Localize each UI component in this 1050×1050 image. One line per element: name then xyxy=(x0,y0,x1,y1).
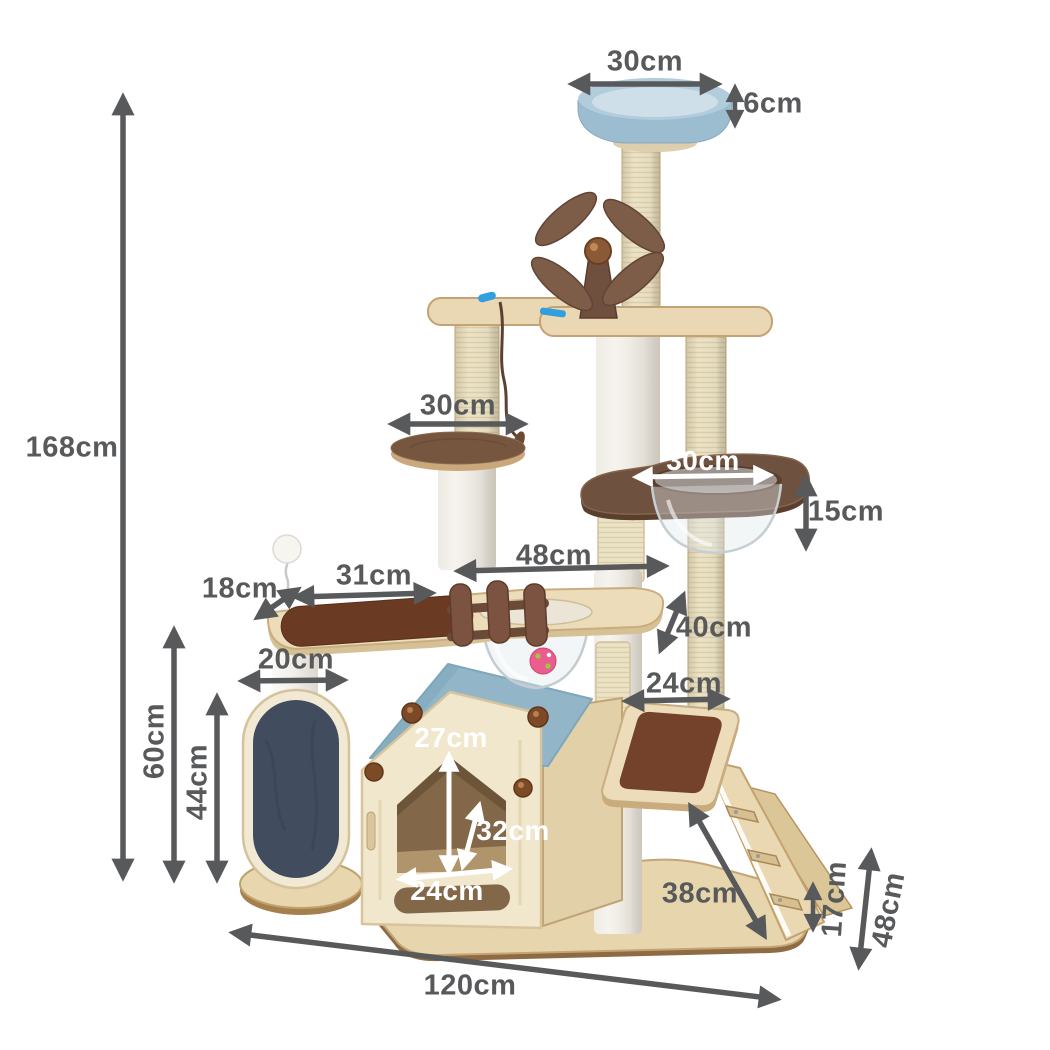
cat-tree-dimension-diagram: 30cm 6cm 168cm 30cm 30cm 15cm 48cm 31cm … xyxy=(0,0,1050,1050)
dim-label-left-perch-depth: 18cm xyxy=(202,575,278,604)
dim-label-ramp-length: 38cm xyxy=(662,880,738,909)
dim-label-upper-platform-width: 48cm xyxy=(516,542,592,571)
dim-arrow-scratcher-width xyxy=(243,680,343,681)
dim-arrow-left-perch-length xyxy=(297,593,431,597)
oval-scratcher xyxy=(240,690,362,915)
top-perch xyxy=(578,78,732,152)
dim-label-round-platform-width: 30cm xyxy=(420,392,496,421)
dim-label-top-perch-width: 30cm xyxy=(607,48,683,77)
fence-toy xyxy=(447,580,549,646)
dim-label-scratcher-height: 60cm xyxy=(141,703,170,779)
dim-label-scratcher-width: 20cm xyxy=(258,646,334,675)
dim-label-ramp-step-height: 17cm xyxy=(818,860,852,938)
dim-label-top-perch-height: 6cm xyxy=(743,90,803,119)
dim-label-capsule-opening: 30cm xyxy=(666,447,740,475)
dim-label-house-diagonal: 32cm xyxy=(476,817,550,845)
step-platform xyxy=(602,703,739,812)
dim-label-door-width: 24cm xyxy=(410,877,484,905)
dim-label-pad-height: 44cm xyxy=(184,744,213,820)
dim-label-platform-to-step: 40cm xyxy=(676,614,752,643)
dim-label-total-height: 168cm xyxy=(26,434,119,463)
dim-arrow-base-depth xyxy=(859,853,871,965)
round-platform xyxy=(391,432,525,471)
dim-label-door-height: 27cm xyxy=(414,724,488,752)
dim-label-step-width: 24cm xyxy=(646,670,722,699)
toy-ball xyxy=(530,648,556,674)
dim-label-base-width: 120cm xyxy=(424,972,517,1001)
dim-label-left-perch-length: 31cm xyxy=(336,562,412,591)
cat-house xyxy=(362,664,622,928)
dim-label-capsule-depth: 15cm xyxy=(808,498,884,527)
